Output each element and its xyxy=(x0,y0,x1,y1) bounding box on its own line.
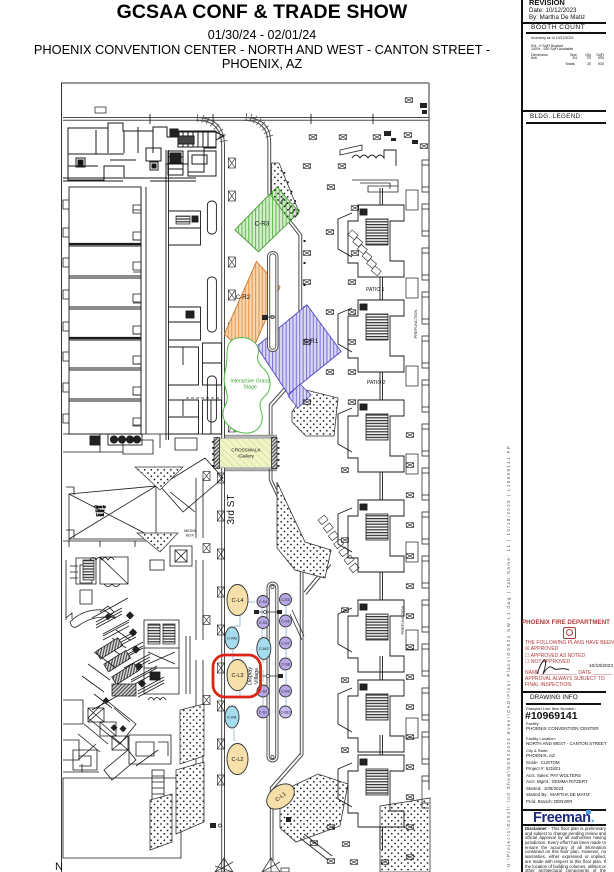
svg-text:C-L2: C-L2 xyxy=(232,757,244,763)
svg-text:C-S4: C-S4 xyxy=(259,600,267,604)
svg-text:CROSSWALK: CROSSWALK xyxy=(231,448,261,453)
svg-text:PREFUNCTION: PREFUNCTION xyxy=(413,309,418,338)
svg-text:C-S5: C-S5 xyxy=(281,598,289,602)
svg-text:C-L4: C-L4 xyxy=(232,598,244,604)
svg-text:C-S6: C-S6 xyxy=(281,619,289,623)
svg-text:MEDIA: MEDIA xyxy=(184,529,196,533)
svg-text:PATIO 2: PATIO 2 xyxy=(367,380,386,386)
svg-text:C-S1: C-S1 xyxy=(259,710,267,714)
svg-text:Display: Display xyxy=(248,667,254,685)
svg-text:C-S9: C-S9 xyxy=(281,689,289,693)
svg-text:C-S3: C-S3 xyxy=(259,621,267,625)
svg-text:C-M1: C-M1 xyxy=(227,714,238,719)
svg-text:PATIO 1: PATIO 1 xyxy=(366,287,385,293)
svg-text:3rd ST: 3rd ST xyxy=(226,494,237,524)
svg-text:N: N xyxy=(55,861,63,872)
svg-text:C-L3: C-L3 xyxy=(232,673,244,679)
svg-text:PREFUNCTION: PREFUNCTION xyxy=(400,605,405,634)
svg-text:Level: Level xyxy=(96,513,104,517)
svg-text:BOX: BOX xyxy=(186,534,194,538)
svg-text:C-R3: C-R3 xyxy=(255,221,270,228)
svg-text:C-S10: C-S10 xyxy=(280,710,290,714)
svg-text:Stage: Stage xyxy=(243,385,257,391)
svg-text:C-R2: C-R2 xyxy=(236,294,251,301)
svg-text:C-M2: C-M2 xyxy=(259,646,270,651)
svg-text:C-S8: C-S8 xyxy=(281,662,289,666)
svg-text:C-S7: C-S7 xyxy=(281,641,289,645)
svg-text:/Gallery: /Gallery xyxy=(238,454,255,459)
svg-text:C-M3: C-M3 xyxy=(227,635,238,640)
